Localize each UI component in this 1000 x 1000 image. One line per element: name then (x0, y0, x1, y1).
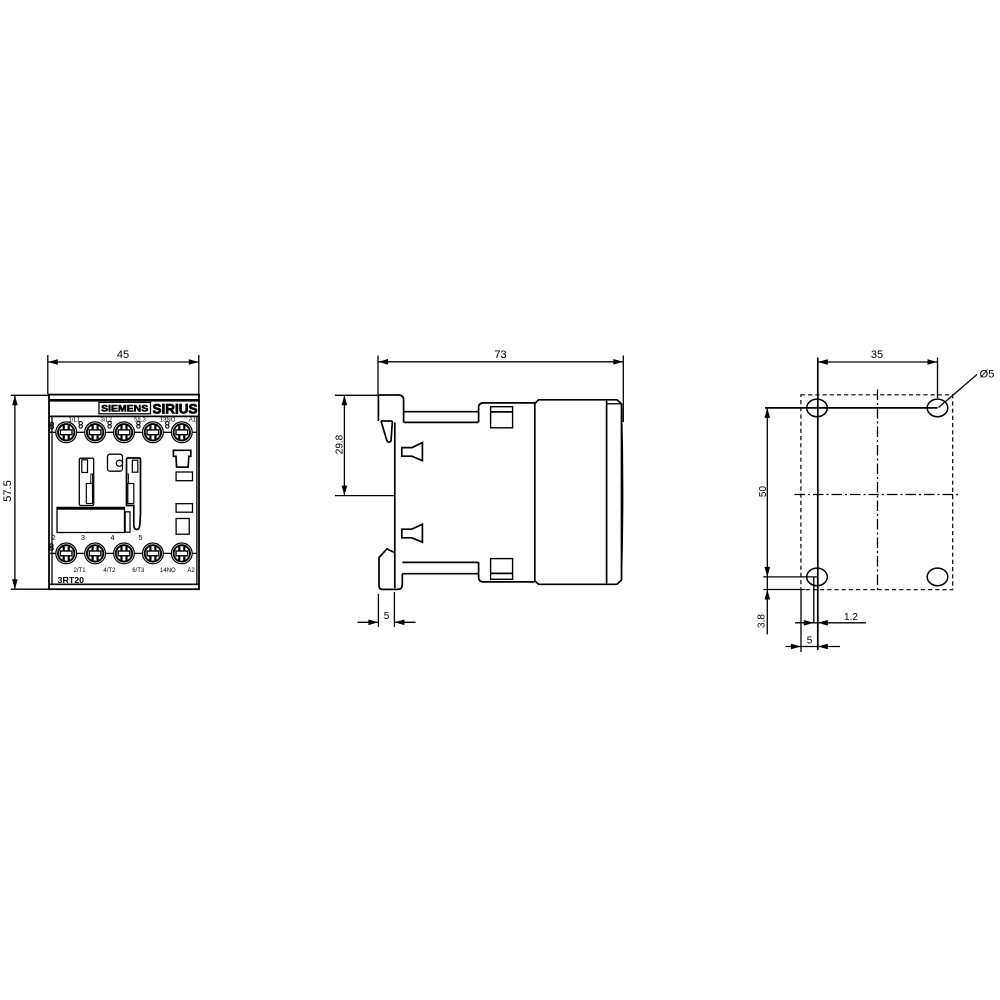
svg-text:3/L2: 3/L2 (101, 418, 113, 424)
svg-text:73: 73 (494, 349, 506, 361)
svg-text:4: 4 (110, 533, 114, 542)
svg-text:6/T3: 6/T3 (132, 568, 145, 574)
svg-text:3RT20: 3RT20 (58, 575, 85, 585)
svg-text:35: 35 (871, 349, 883, 361)
svg-text:SIRIUS: SIRIUS (153, 402, 198, 417)
svg-text:1/L1: 1/L1 (69, 418, 81, 424)
svg-text:3.8: 3.8 (757, 614, 768, 628)
svg-text:45: 45 (117, 349, 129, 361)
svg-text:13NO: 13NO (160, 418, 176, 424)
svg-text:50: 50 (758, 486, 769, 498)
svg-text:Ø5: Ø5 (980, 369, 995, 381)
svg-text:29.8: 29.8 (335, 434, 346, 454)
svg-text:5: 5 (384, 611, 390, 622)
svg-text:2/T1: 2/T1 (74, 568, 87, 574)
svg-text:5: 5 (138, 533, 142, 542)
svg-text:A1: A1 (189, 418, 197, 424)
svg-text:SIEMENS: SIEMENS (101, 404, 148, 414)
svg-text:14NO: 14NO (160, 568, 176, 574)
svg-text:5/L3: 5/L3 (134, 418, 146, 424)
svg-text:57.5: 57.5 (2, 480, 14, 501)
svg-text:5: 5 (807, 636, 813, 647)
svg-text:2: 2 (51, 533, 55, 542)
svg-text:A2: A2 (187, 568, 195, 574)
svg-text:4/T2: 4/T2 (103, 568, 116, 574)
svg-text:3: 3 (81, 533, 85, 542)
svg-text:1.2: 1.2 (844, 612, 858, 623)
